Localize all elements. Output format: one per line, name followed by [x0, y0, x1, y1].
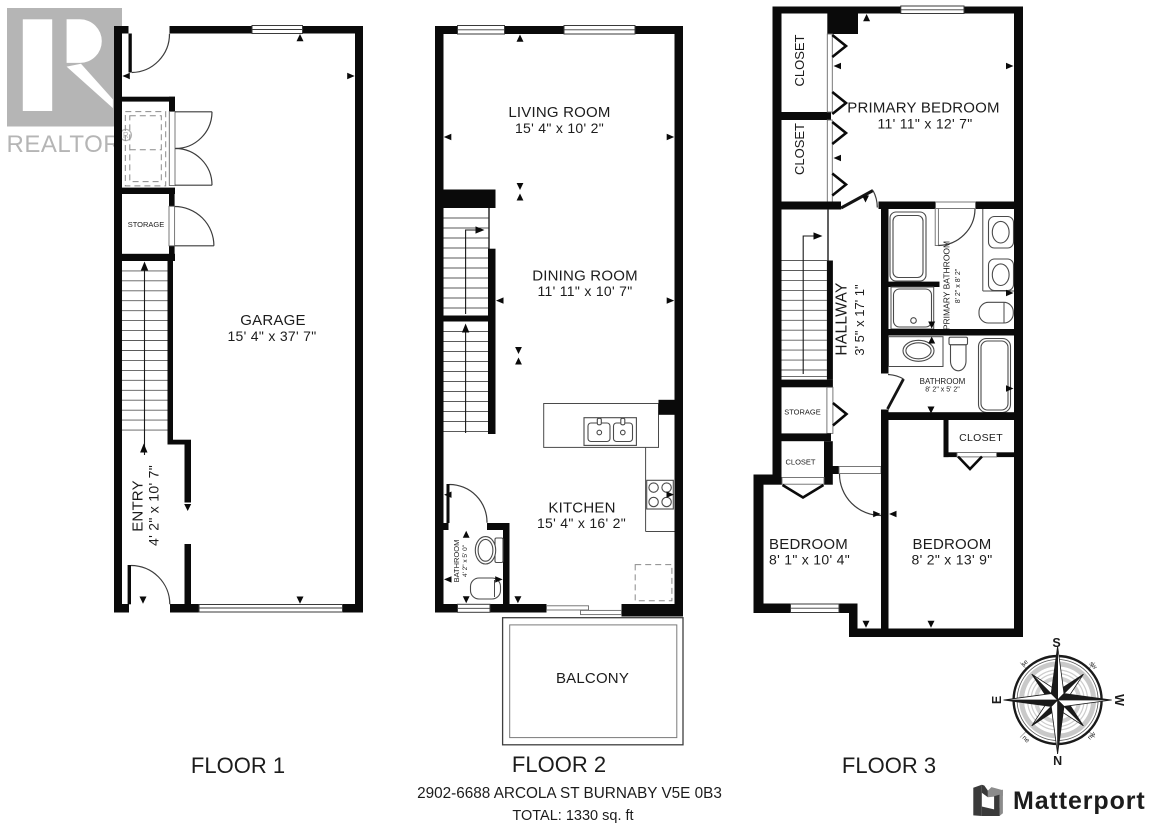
svg-text:11' 11" x 12' 7": 11' 11" x 12' 7"	[877, 116, 972, 132]
svg-text:E: E	[990, 696, 1004, 704]
svg-text:BEDROOM: BEDROOM	[769, 536, 848, 553]
svg-text:3' 5" x 17' 1": 3' 5" x 17' 1"	[852, 284, 867, 356]
svg-text:Matterport: Matterport	[1013, 787, 1146, 815]
svg-text:FLOOR 2: FLOOR 2	[512, 752, 606, 777]
svg-text:STORAGE: STORAGE	[784, 408, 821, 417]
svg-text:N: N	[1053, 754, 1062, 768]
svg-text:R: R	[123, 131, 129, 140]
svg-text:BATHROOM: BATHROOM	[920, 377, 966, 386]
svg-text:REALTOR: REALTOR	[7, 131, 122, 158]
svg-text:11' 11" x 10' 7": 11' 11" x 10' 7"	[537, 283, 632, 299]
svg-text:CLOSET: CLOSET	[792, 123, 807, 175]
svg-text:15' 4" x 37' 7": 15' 4" x 37' 7"	[227, 328, 316, 344]
svg-text:ENTRY: ENTRY	[130, 480, 147, 532]
svg-text:CLOSET: CLOSET	[785, 458, 815, 467]
svg-text:KITCHEN: KITCHEN	[548, 500, 615, 517]
svg-text:BALCONY: BALCONY	[556, 670, 629, 687]
svg-text:FLOOR 3: FLOOR 3	[842, 753, 936, 778]
svg-text:BEDROOM: BEDROOM	[913, 536, 992, 553]
svg-text:GARAGE: GARAGE	[240, 312, 305, 329]
svg-text:8' 1" x 10' 4": 8' 1" x 10' 4"	[769, 552, 850, 568]
svg-text:15' 4" x 16' 2": 15' 4" x 16' 2"	[537, 515, 626, 531]
svg-text:LIVING ROOM: LIVING ROOM	[508, 104, 610, 121]
svg-text:BATHROOM: BATHROOM	[452, 540, 461, 583]
svg-text:2902-6688 ARCOLA ST BURNABY V5: 2902-6688 ARCOLA ST BURNABY V5E 0B3	[417, 785, 722, 802]
svg-text:TOTAL: 1330 sq. ft: TOTAL: 1330 sq. ft	[512, 808, 633, 824]
svg-text:PRIMARY BEDROOM: PRIMARY BEDROOM	[847, 100, 999, 117]
svg-text:DINING ROOM: DINING ROOM	[532, 268, 638, 285]
svg-text:W: W	[1112, 694, 1126, 706]
svg-text:4' 2" x 5' 0": 4' 2" x 5' 0"	[462, 544, 469, 577]
svg-text:8' 2" x 5' 2": 8' 2" x 5' 2"	[925, 387, 960, 394]
svg-text:HALLWAY: HALLWAY	[834, 282, 851, 355]
svg-text:8' 2" x 8' 2": 8' 2" x 8' 2"	[955, 268, 962, 303]
svg-text:STORAGE: STORAGE	[128, 220, 165, 229]
svg-text:FLOOR 1: FLOOR 1	[191, 753, 285, 778]
svg-text:CLOSET: CLOSET	[792, 34, 807, 86]
svg-text:PRIMARY BATHROOM: PRIMARY BATHROOM	[942, 241, 952, 330]
svg-text:CLOSET: CLOSET	[959, 432, 1003, 444]
svg-text:8' 2" x 13' 9": 8' 2" x 13' 9"	[912, 552, 993, 568]
svg-text:4' 2" x 10' 7": 4' 2" x 10' 7"	[146, 465, 162, 546]
svg-text:S: S	[1052, 636, 1060, 650]
svg-text:15' 4" x 10' 2": 15' 4" x 10' 2"	[515, 120, 604, 136]
